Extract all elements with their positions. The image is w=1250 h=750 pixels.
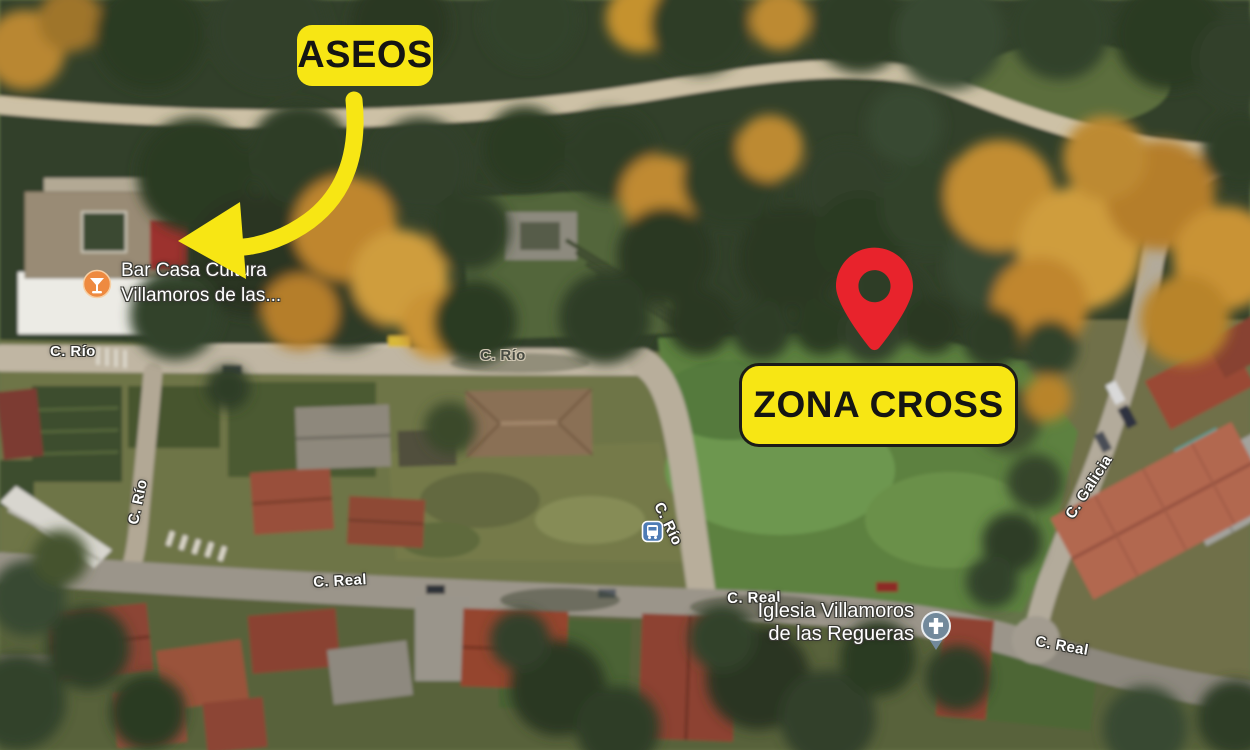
road-label-real-1: C. Real	[313, 571, 367, 591]
bar-poi-label[interactable]: Bar Casa Cultura Villamoros de las...	[121, 258, 281, 308]
church-icon[interactable]	[919, 609, 953, 653]
road-label-rio-1: C. Río	[50, 343, 96, 360]
bar-poi-line2: Villamoros de las...	[121, 283, 281, 308]
zona-cross-callout-text: ZONA CROSS	[753, 384, 1003, 426]
satellite-map[interactable]: C. Río C. Río C. Río C. Río C. Galicia C…	[0, 0, 1250, 750]
aseos-callout: ASEOS	[297, 25, 433, 86]
road-label-rio-2: C. Río	[480, 347, 526, 364]
church-poi-label[interactable]: Iglesia Villamoros de las Regueras	[700, 600, 914, 646]
bar-icon[interactable]	[82, 269, 112, 299]
aseos-callout-text: ASEOS	[297, 34, 433, 77]
church-poi-line1: Iglesia Villamoros	[700, 600, 914, 623]
church-poi-line2: de las Regueras	[700, 623, 914, 646]
zona-cross-callout: ZONA CROSS	[739, 363, 1018, 447]
bus-stop-icon[interactable]	[641, 520, 664, 543]
bar-poi-line1: Bar Casa Cultura	[121, 258, 281, 283]
hip-roof-house	[465, 389, 592, 457]
